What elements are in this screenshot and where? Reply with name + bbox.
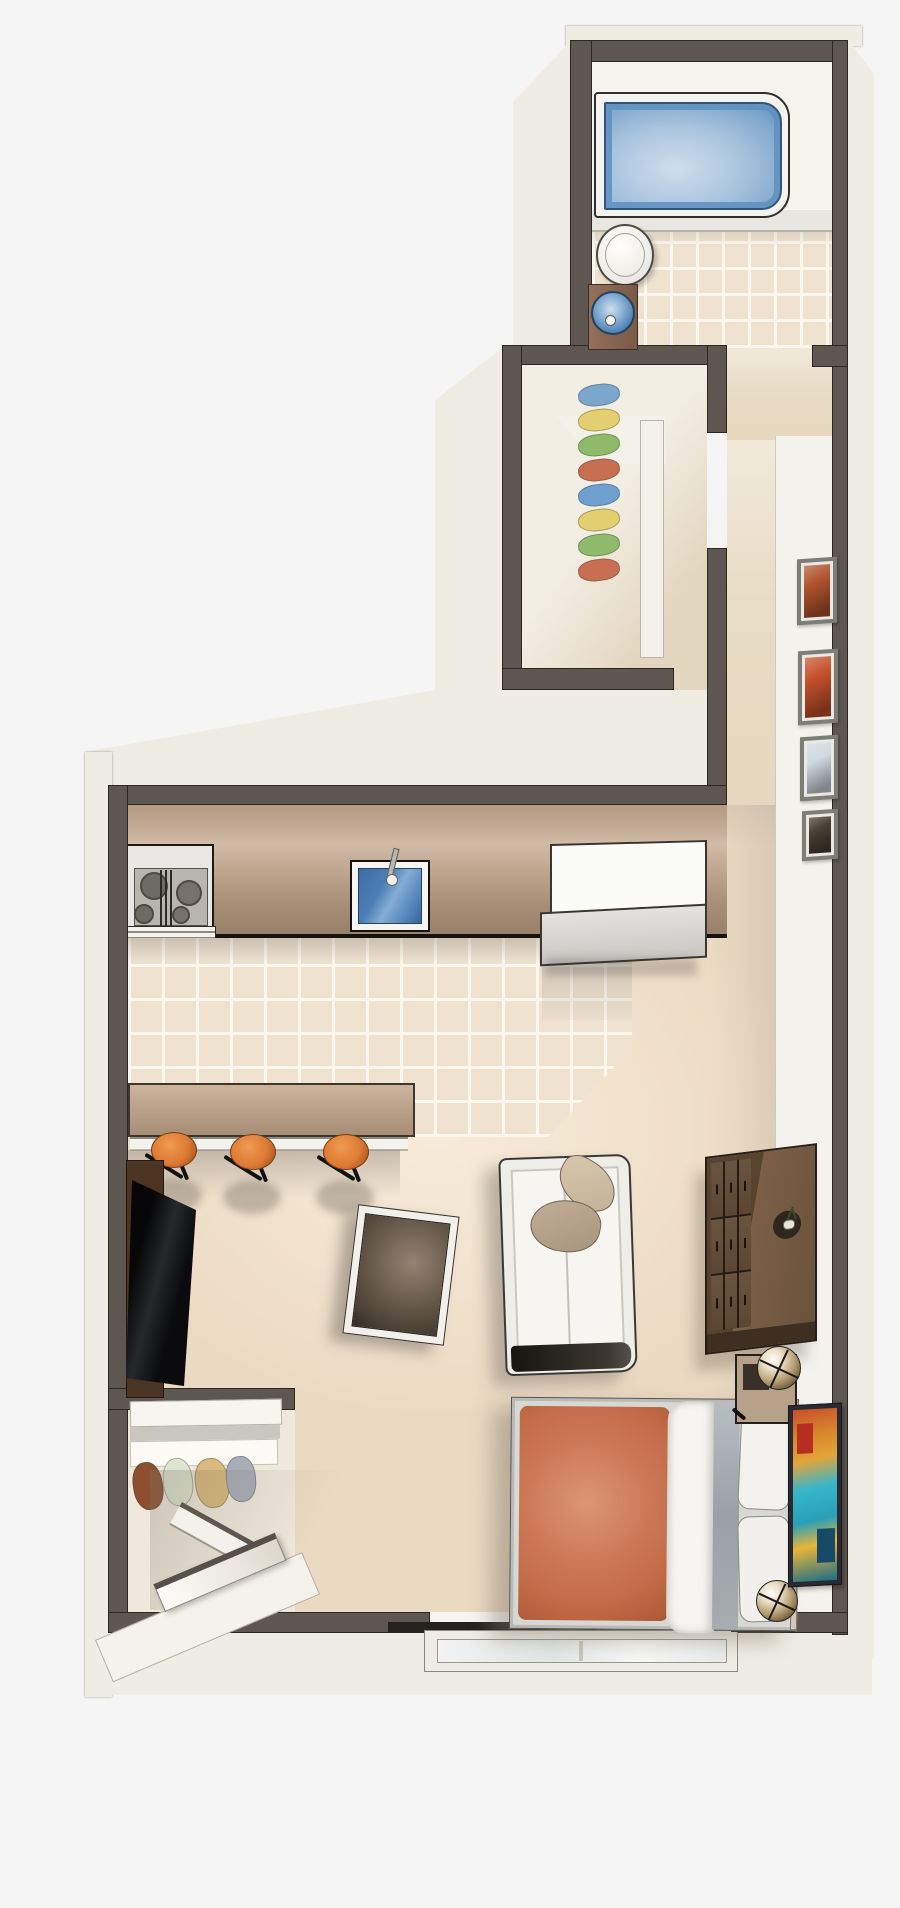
drawer <box>725 1273 737 1329</box>
bar-stool <box>217 1132 289 1218</box>
wall-hall-stub <box>707 548 727 805</box>
drawer <box>711 1275 723 1331</box>
bed-blanket <box>712 1402 740 1630</box>
drawer-handle <box>730 1240 732 1250</box>
stove-grill-lines <box>160 870 172 926</box>
bathroom-sink-basin <box>591 291 635 335</box>
drawer <box>739 1272 751 1328</box>
stove-burner <box>134 904 154 924</box>
wall-closet-left <box>502 345 522 690</box>
plant-pot <box>783 1219 795 1230</box>
window-frame <box>424 1630 738 1672</box>
bed-duvet <box>518 1406 670 1621</box>
wall-main-left <box>108 785 128 1633</box>
dresser <box>705 1143 817 1355</box>
toilet <box>596 224 654 286</box>
drawer <box>739 1215 751 1271</box>
wall-bathroom-top <box>570 40 848 62</box>
frame-art <box>809 816 831 854</box>
stove <box>126 844 214 944</box>
drawer <box>739 1158 751 1214</box>
refrigerator-shadow <box>545 958 697 976</box>
lamp-spoke <box>768 1583 787 1620</box>
picture-frame <box>802 809 838 862</box>
hallway-floor <box>727 440 775 805</box>
table-lamp-upper <box>757 1346 801 1390</box>
stool-shadow <box>223 1180 281 1214</box>
outer-face-mid-band <box>85 690 740 788</box>
plant-sprig <box>791 1207 797 1220</box>
picture-frame <box>800 735 838 802</box>
coffee-table <box>342 1204 459 1345</box>
picture-frame <box>798 649 838 726</box>
painting-canvas <box>793 1408 837 1582</box>
painting-navy-block <box>817 1528 835 1563</box>
bed-folded-sheet <box>666 1401 716 1633</box>
painting-red-block <box>797 1423 813 1454</box>
drawer-handle <box>716 1185 718 1195</box>
sofa-footer-shadow <box>511 1342 632 1372</box>
closet-partition-vertical <box>640 420 664 658</box>
window-mullion <box>579 1641 583 1661</box>
breakfast-bar <box>128 1083 415 1137</box>
picture-frame <box>797 557 837 626</box>
sofa <box>498 1154 638 1376</box>
wall-main-top <box>108 785 727 805</box>
faucet-knob <box>386 874 398 886</box>
drawer-handle <box>730 1296 732 1306</box>
frame-art <box>805 656 831 718</box>
drawer-handle <box>744 1181 746 1191</box>
bathtub-basin <box>604 102 782 210</box>
toilet-seat-line <box>605 233 645 277</box>
drawer <box>711 1162 723 1218</box>
frame-art <box>804 564 830 618</box>
dresser-drawers <box>711 1158 751 1331</box>
drawer-handle <box>716 1298 718 1308</box>
faucet-knob <box>605 315 616 326</box>
stove-burner <box>176 880 202 906</box>
stool-seat <box>323 1134 369 1170</box>
drawer <box>725 1217 737 1273</box>
wall-bathroom-door-stub <box>812 345 848 367</box>
drawer <box>725 1160 737 1216</box>
drawer-handle <box>744 1238 746 1248</box>
bathtub <box>594 92 790 218</box>
wall-closet-bottom <box>502 668 674 690</box>
stove-burner <box>172 906 190 924</box>
drawer-handle <box>730 1183 732 1193</box>
outer-face-right <box>848 40 874 1660</box>
wall-art-painting <box>788 1403 842 1588</box>
floor-plan <box>0 0 900 1908</box>
wall-closet-doorjamb-upper <box>707 345 727 433</box>
stool-seat <box>230 1134 276 1170</box>
drawer-handle <box>744 1294 746 1304</box>
drawer <box>711 1218 723 1274</box>
coat-closet-shelf <box>130 1399 282 1428</box>
frame-art <box>807 742 831 794</box>
lamp-spoke <box>769 1350 789 1389</box>
refrigerator-front <box>540 904 707 967</box>
coffee-table-top <box>351 1213 450 1337</box>
drawer-handle <box>716 1241 718 1251</box>
kitchen-sink <box>350 860 430 932</box>
plant-icon <box>773 1209 801 1240</box>
